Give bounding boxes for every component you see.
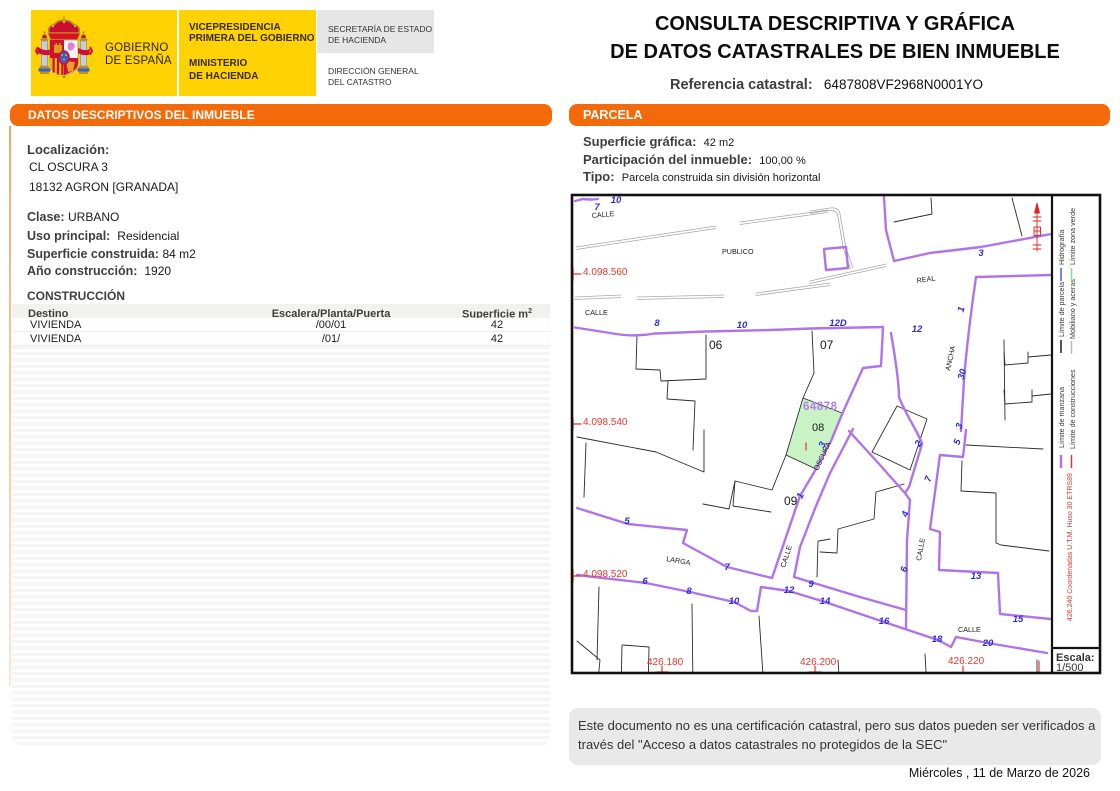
svg-text:4.098.540: 4.098.540 — [583, 417, 628, 428]
svg-text:426.240 Coordenadas U.T.M. Hus: 426.240 Coordenadas U.T.M. Huso 30 ETRS8… — [1067, 473, 1074, 621]
svg-text:12: 12 — [784, 585, 795, 596]
svg-text:CALLE: CALLE — [914, 537, 927, 561]
svg-text:8: 8 — [654, 318, 660, 329]
svg-text:06: 06 — [709, 338, 723, 352]
svg-text:Mobiliario y aceras: Mobiliario y aceras — [1068, 279, 1077, 339]
svg-text:10: 10 — [737, 320, 748, 331]
svg-text:30: 30 — [956, 367, 970, 381]
svg-text:08: 08 — [812, 422, 824, 434]
svg-text:Límite de parcela: Límite de parcela — [1057, 282, 1066, 337]
svg-text:3: 3 — [954, 421, 966, 430]
svg-text:426.200: 426.200 — [800, 657, 837, 668]
svg-text:7: 7 — [724, 562, 730, 573]
svg-text:1: 1 — [956, 305, 968, 313]
svg-text:12D: 12D — [829, 318, 847, 329]
svg-text:2: 2 — [912, 438, 925, 450]
svg-text:Límite de manzana: Límite de manzana — [1057, 387, 1066, 448]
svg-text:REAL: REAL — [916, 273, 936, 285]
svg-text:20: 20 — [982, 638, 994, 649]
svg-text:13: 13 — [971, 571, 982, 582]
svg-text:5: 5 — [952, 437, 964, 446]
svg-text:10: 10 — [729, 596, 740, 607]
svg-text:PUBLICO: PUBLICO — [722, 247, 754, 256]
svg-text:CALLE: CALLE — [585, 308, 608, 317]
svg-text:CALLE: CALLE — [778, 544, 794, 569]
svg-text:Hidrografía: Hidrografía — [1057, 229, 1066, 265]
svg-text:426.220: 426.220 — [948, 656, 985, 667]
svg-text:4.098.560: 4.098.560 — [583, 267, 628, 278]
svg-text:CALLE: CALLE — [958, 625, 981, 634]
svg-text:5: 5 — [624, 516, 630, 527]
svg-text:16: 16 — [879, 616, 890, 627]
svg-text:9: 9 — [808, 579, 814, 590]
svg-text:6: 6 — [642, 576, 648, 587]
svg-text:7: 7 — [923, 474, 935, 483]
svg-text:07: 07 — [820, 338, 834, 352]
svg-text:4.098.520: 4.098.520 — [583, 569, 628, 580]
svg-text:ANCHA: ANCHA — [943, 345, 957, 372]
svg-text:12: 12 — [912, 324, 923, 335]
svg-text:15: 15 — [1013, 614, 1024, 625]
svg-text:3: 3 — [978, 248, 984, 259]
svg-text:8: 8 — [686, 586, 692, 597]
svg-text:LARGA: LARGA — [666, 554, 692, 567]
svg-text:64878: 64878 — [803, 401, 838, 413]
svg-text:7: 7 — [594, 202, 600, 213]
svg-text:Límite zona verde: Límite zona verde — [1068, 208, 1077, 265]
svg-text:10: 10 — [611, 195, 622, 206]
svg-text:18: 18 — [932, 634, 943, 645]
svg-text:6: 6 — [899, 565, 911, 574]
svg-text:Límite de construcciones: Límite de construcciones — [1068, 369, 1077, 449]
svg-text:14: 14 — [820, 596, 831, 607]
svg-text:426.180: 426.180 — [647, 657, 684, 668]
